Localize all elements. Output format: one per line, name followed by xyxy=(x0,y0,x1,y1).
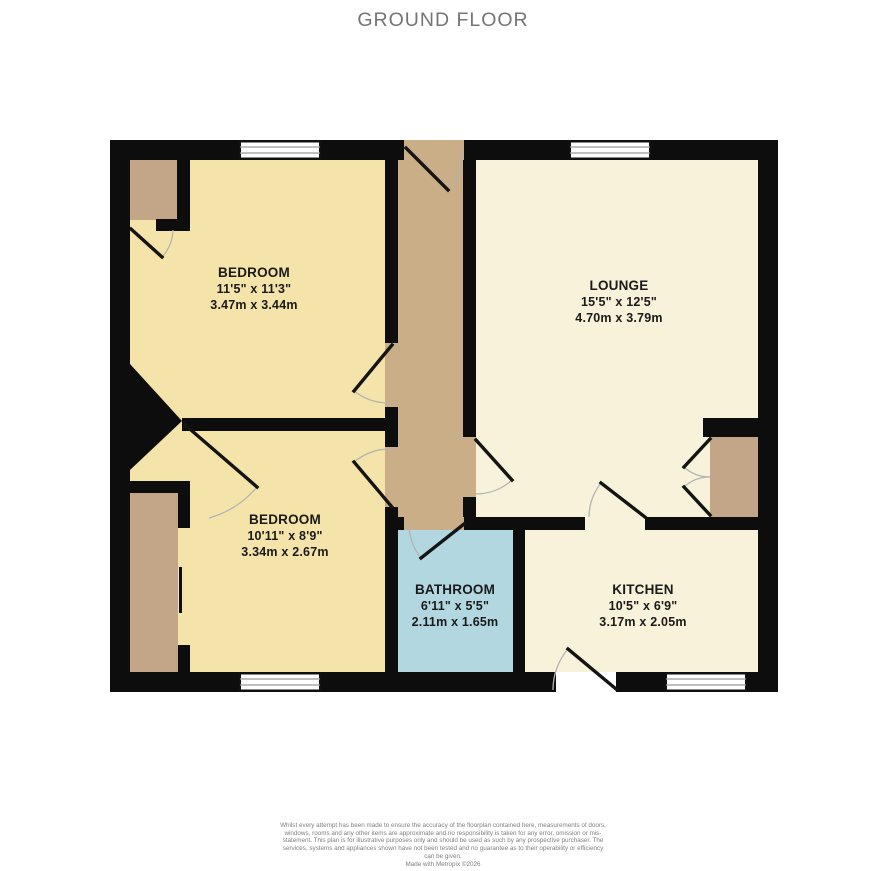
wall-bathroom-top-right xyxy=(464,517,525,530)
footer: Whilst every attempt has been made to en… xyxy=(278,822,608,869)
wall-lounge-closet-top xyxy=(703,418,758,437)
wall-hall-bedroom1 xyxy=(385,160,398,343)
wall-closet1-bottom xyxy=(156,219,190,231)
bedroom-1-closet xyxy=(130,160,177,220)
bedroom-2-label: BEDROOM 10'11" x 8'9" 3.34m x 2.67m xyxy=(241,512,328,559)
bedroom-1-imperial: 11'5" x 11'3" xyxy=(217,282,292,296)
wall-closet2-stub-bottom xyxy=(178,645,190,672)
bathroom-imperial: 6'11" x 5'5" xyxy=(421,599,489,613)
wall-between-bedrooms xyxy=(182,418,398,431)
wall-bathroom-kitchen xyxy=(513,530,525,672)
wall-closet2-stub-top xyxy=(178,493,190,528)
metropix-credit: Made with Metropix ©2026 xyxy=(278,861,608,869)
bedroom1-window-icon xyxy=(240,142,320,159)
wall-bathroom-left xyxy=(385,507,398,672)
closet2-door-panel xyxy=(179,567,182,613)
bedroom-2-closet xyxy=(130,493,178,672)
wall-closet2-top xyxy=(130,481,190,493)
bedroom-1-name: BEDROOM xyxy=(218,265,290,280)
lounge-metric: 4.70m x 3.79m xyxy=(575,311,662,325)
bathroom-metric: 2.11m x 1.65m xyxy=(412,615,499,629)
wall-left xyxy=(110,140,130,692)
wall-hall-lounge xyxy=(463,160,476,437)
floorplan-diagram: BEDROOM 11'5" x 11'3" 3.47m x 3.44m LOUN… xyxy=(0,0,886,871)
bedroom-1-label: BEDROOM 11'5" x 11'3" 3.47m x 3.44m xyxy=(210,265,297,312)
kitchen-metric: 3.17m x 2.05m xyxy=(599,615,686,629)
bedroom-2-metric: 3.34m x 2.67m xyxy=(241,545,328,559)
bathroom-name: BATHROOM xyxy=(415,582,495,597)
bathroom-door-opening xyxy=(404,517,464,530)
lounge-name: LOUNGE xyxy=(590,278,649,293)
kitchen-door-opening xyxy=(585,517,645,530)
bedroom2-window-icon xyxy=(240,674,320,691)
lounge-door-opening xyxy=(463,437,476,497)
kitchen-name: KITCHEN xyxy=(612,582,673,597)
bedroom-2-name: BEDROOM xyxy=(249,512,321,527)
hallway-floor xyxy=(398,160,463,517)
kitchen-label: KITCHEN 10'5" x 6'9" 3.17m x 2.05m xyxy=(599,582,686,629)
bedroom-1-metric: 3.47m x 3.44m xyxy=(210,298,297,312)
bedroom-2-imperial: 10'11" x 8'9" xyxy=(247,529,322,543)
wall-bathroom-top-left xyxy=(385,517,404,530)
bedroom2-door-opening xyxy=(385,447,398,507)
wall-right xyxy=(758,140,778,692)
lounge-closet xyxy=(710,437,758,517)
kitchen-window-icon xyxy=(666,674,746,691)
kitchen-imperial: 10'5" x 6'9" xyxy=(609,599,678,613)
disclaimer-text: Whilst every attempt has been made to en… xyxy=(278,822,608,860)
wall-kitchen-top-left xyxy=(525,517,585,530)
bathroom-label: BATHROOM 6'11" x 5'5" 2.11m x 1.65m xyxy=(412,582,499,629)
wall-kitchen-top-right xyxy=(645,517,758,530)
lounge-window-icon xyxy=(570,142,650,159)
lounge-imperial: 15'5" x 12'5" xyxy=(581,295,657,309)
